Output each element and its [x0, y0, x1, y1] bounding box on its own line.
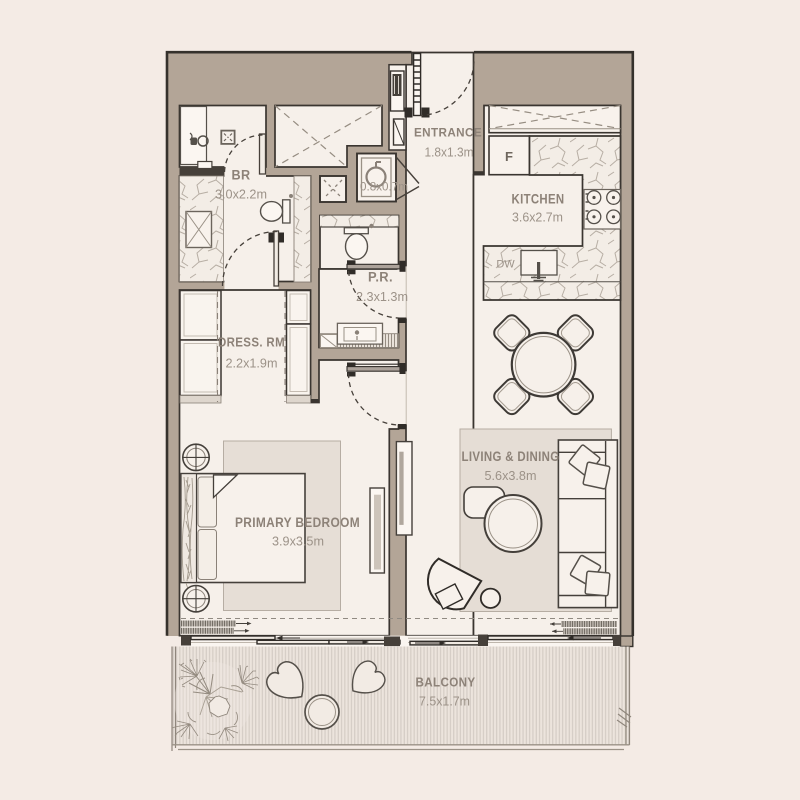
svg-text:P.R.: P.R.	[368, 270, 393, 285]
svg-text:2.3x1.3m: 2.3x1.3m	[356, 290, 408, 304]
svg-text:7.5x1.7m: 7.5x1.7m	[419, 695, 470, 709]
svg-text:2.2x1.9m: 2.2x1.9m	[226, 357, 278, 371]
svg-text:KITCHEN: KITCHEN	[512, 192, 565, 207]
svg-text:LIVING & DINING: LIVING & DINING	[462, 449, 560, 464]
svg-text:PRIMARY BEDROOM: PRIMARY BEDROOM	[235, 515, 360, 530]
svg-text:3.0x2.2m: 3.0x2.2m	[215, 188, 267, 202]
svg-text:BALCONY: BALCONY	[416, 675, 476, 690]
svg-text:1.8x1.3m: 1.8x1.3m	[425, 146, 474, 160]
svg-text:ENTRANCE: ENTRANCE	[414, 126, 482, 140]
svg-text:3.6x2.7m: 3.6x2.7m	[512, 211, 563, 225]
svg-text:3.9x3.5m: 3.9x3.5m	[272, 535, 324, 549]
svg-text:BR: BR	[232, 168, 251, 183]
svg-text:5.6x3.8m: 5.6x3.8m	[485, 469, 537, 483]
svg-text:F: F	[505, 149, 513, 164]
svg-text:DRESS. RM: DRESS. RM	[218, 335, 285, 350]
svg-text:DW: DW	[496, 259, 515, 271]
svg-text:0.8x0.7m: 0.8x0.7m	[360, 180, 408, 194]
